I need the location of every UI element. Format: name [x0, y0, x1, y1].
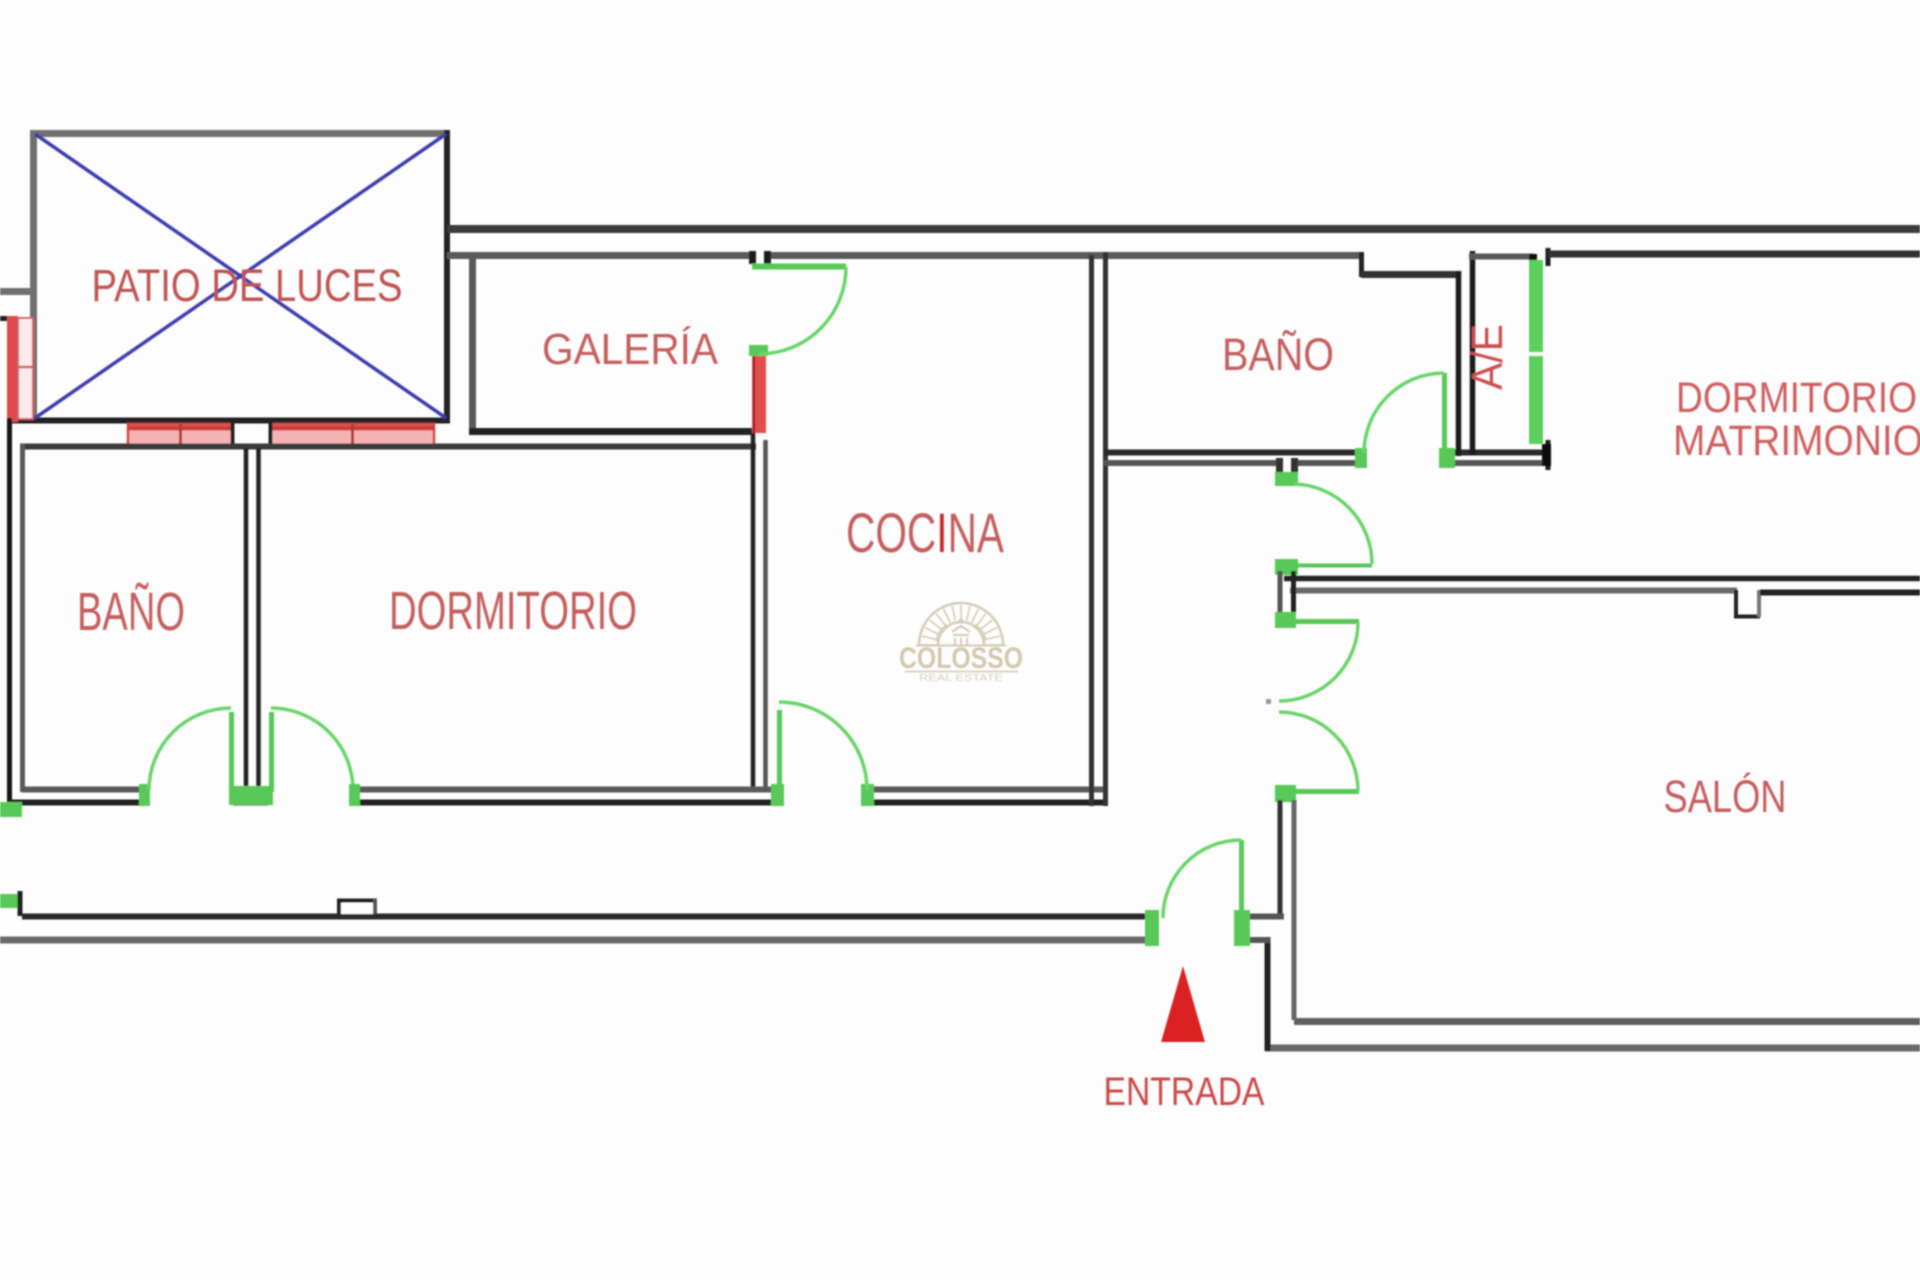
svg-text:COLOSSO: COLOSSO [899, 642, 1023, 675]
svg-text:MATRIMONIO: MATRIMONIO [1673, 417, 1920, 465]
svg-text:DORMITORIO: DORMITORIO [1676, 374, 1917, 422]
svg-text:COCINA: COCINA [846, 501, 1004, 564]
svg-text:ENTRADA: ENTRADA [1104, 1070, 1265, 1114]
svg-text:BAÑO: BAÑO [77, 582, 185, 642]
svg-text:SALÓN: SALÓN [1664, 771, 1787, 822]
svg-text:REAL ESTATE: REAL ESTATE [919, 673, 1003, 684]
svg-text:A/E: A/E [1463, 324, 1512, 390]
svg-text:BAÑO: BAÑO [1222, 329, 1334, 380]
svg-text:GALERÍA: GALERÍA [542, 325, 719, 374]
svg-text:DORMITORIO: DORMITORIO [389, 581, 637, 641]
svg-text:PATIO DE LUCES: PATIO DE LUCES [92, 260, 403, 311]
